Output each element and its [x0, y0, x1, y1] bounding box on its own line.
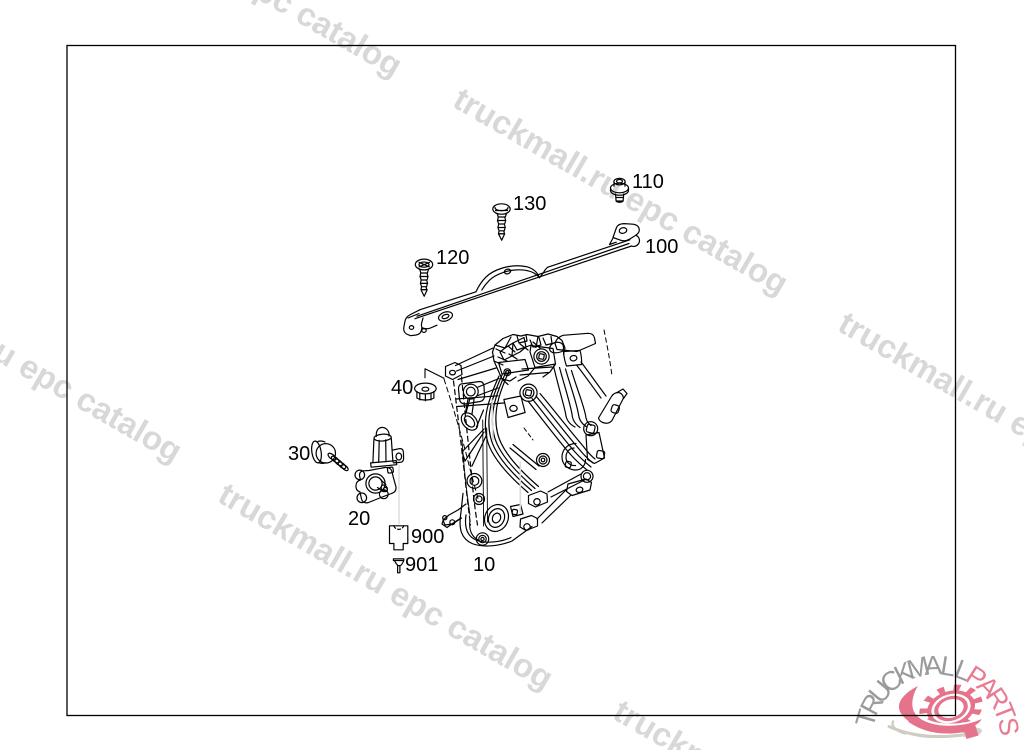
svg-text:30: 30: [288, 443, 310, 465]
svg-text:120: 120: [436, 247, 469, 269]
svg-text:100: 100: [645, 236, 678, 258]
svg-text:900: 900: [411, 526, 444, 548]
svg-text:truckmall.ru epc catalog: truckmall.ru epc catalog: [833, 304, 1024, 526]
svg-text:10: 10: [473, 554, 495, 576]
svg-text:truckmall.ru epc catalog: truckmall.ru epc catalog: [62, 0, 409, 84]
svg-text:110: 110: [632, 171, 664, 193]
svg-text:truckmall.ru epc catalog: truckmall.ru epc catalog: [213, 475, 560, 697]
svg-text:130: 130: [513, 193, 546, 215]
svg-text:40: 40: [391, 377, 413, 399]
svg-text:901: 901: [405, 554, 438, 576]
svg-text:S: S: [992, 715, 1024, 738]
svg-text:truckmall.ru epc catalog: truckmall.ru epc catalog: [0, 248, 189, 470]
svg-text:20: 20: [348, 508, 370, 530]
